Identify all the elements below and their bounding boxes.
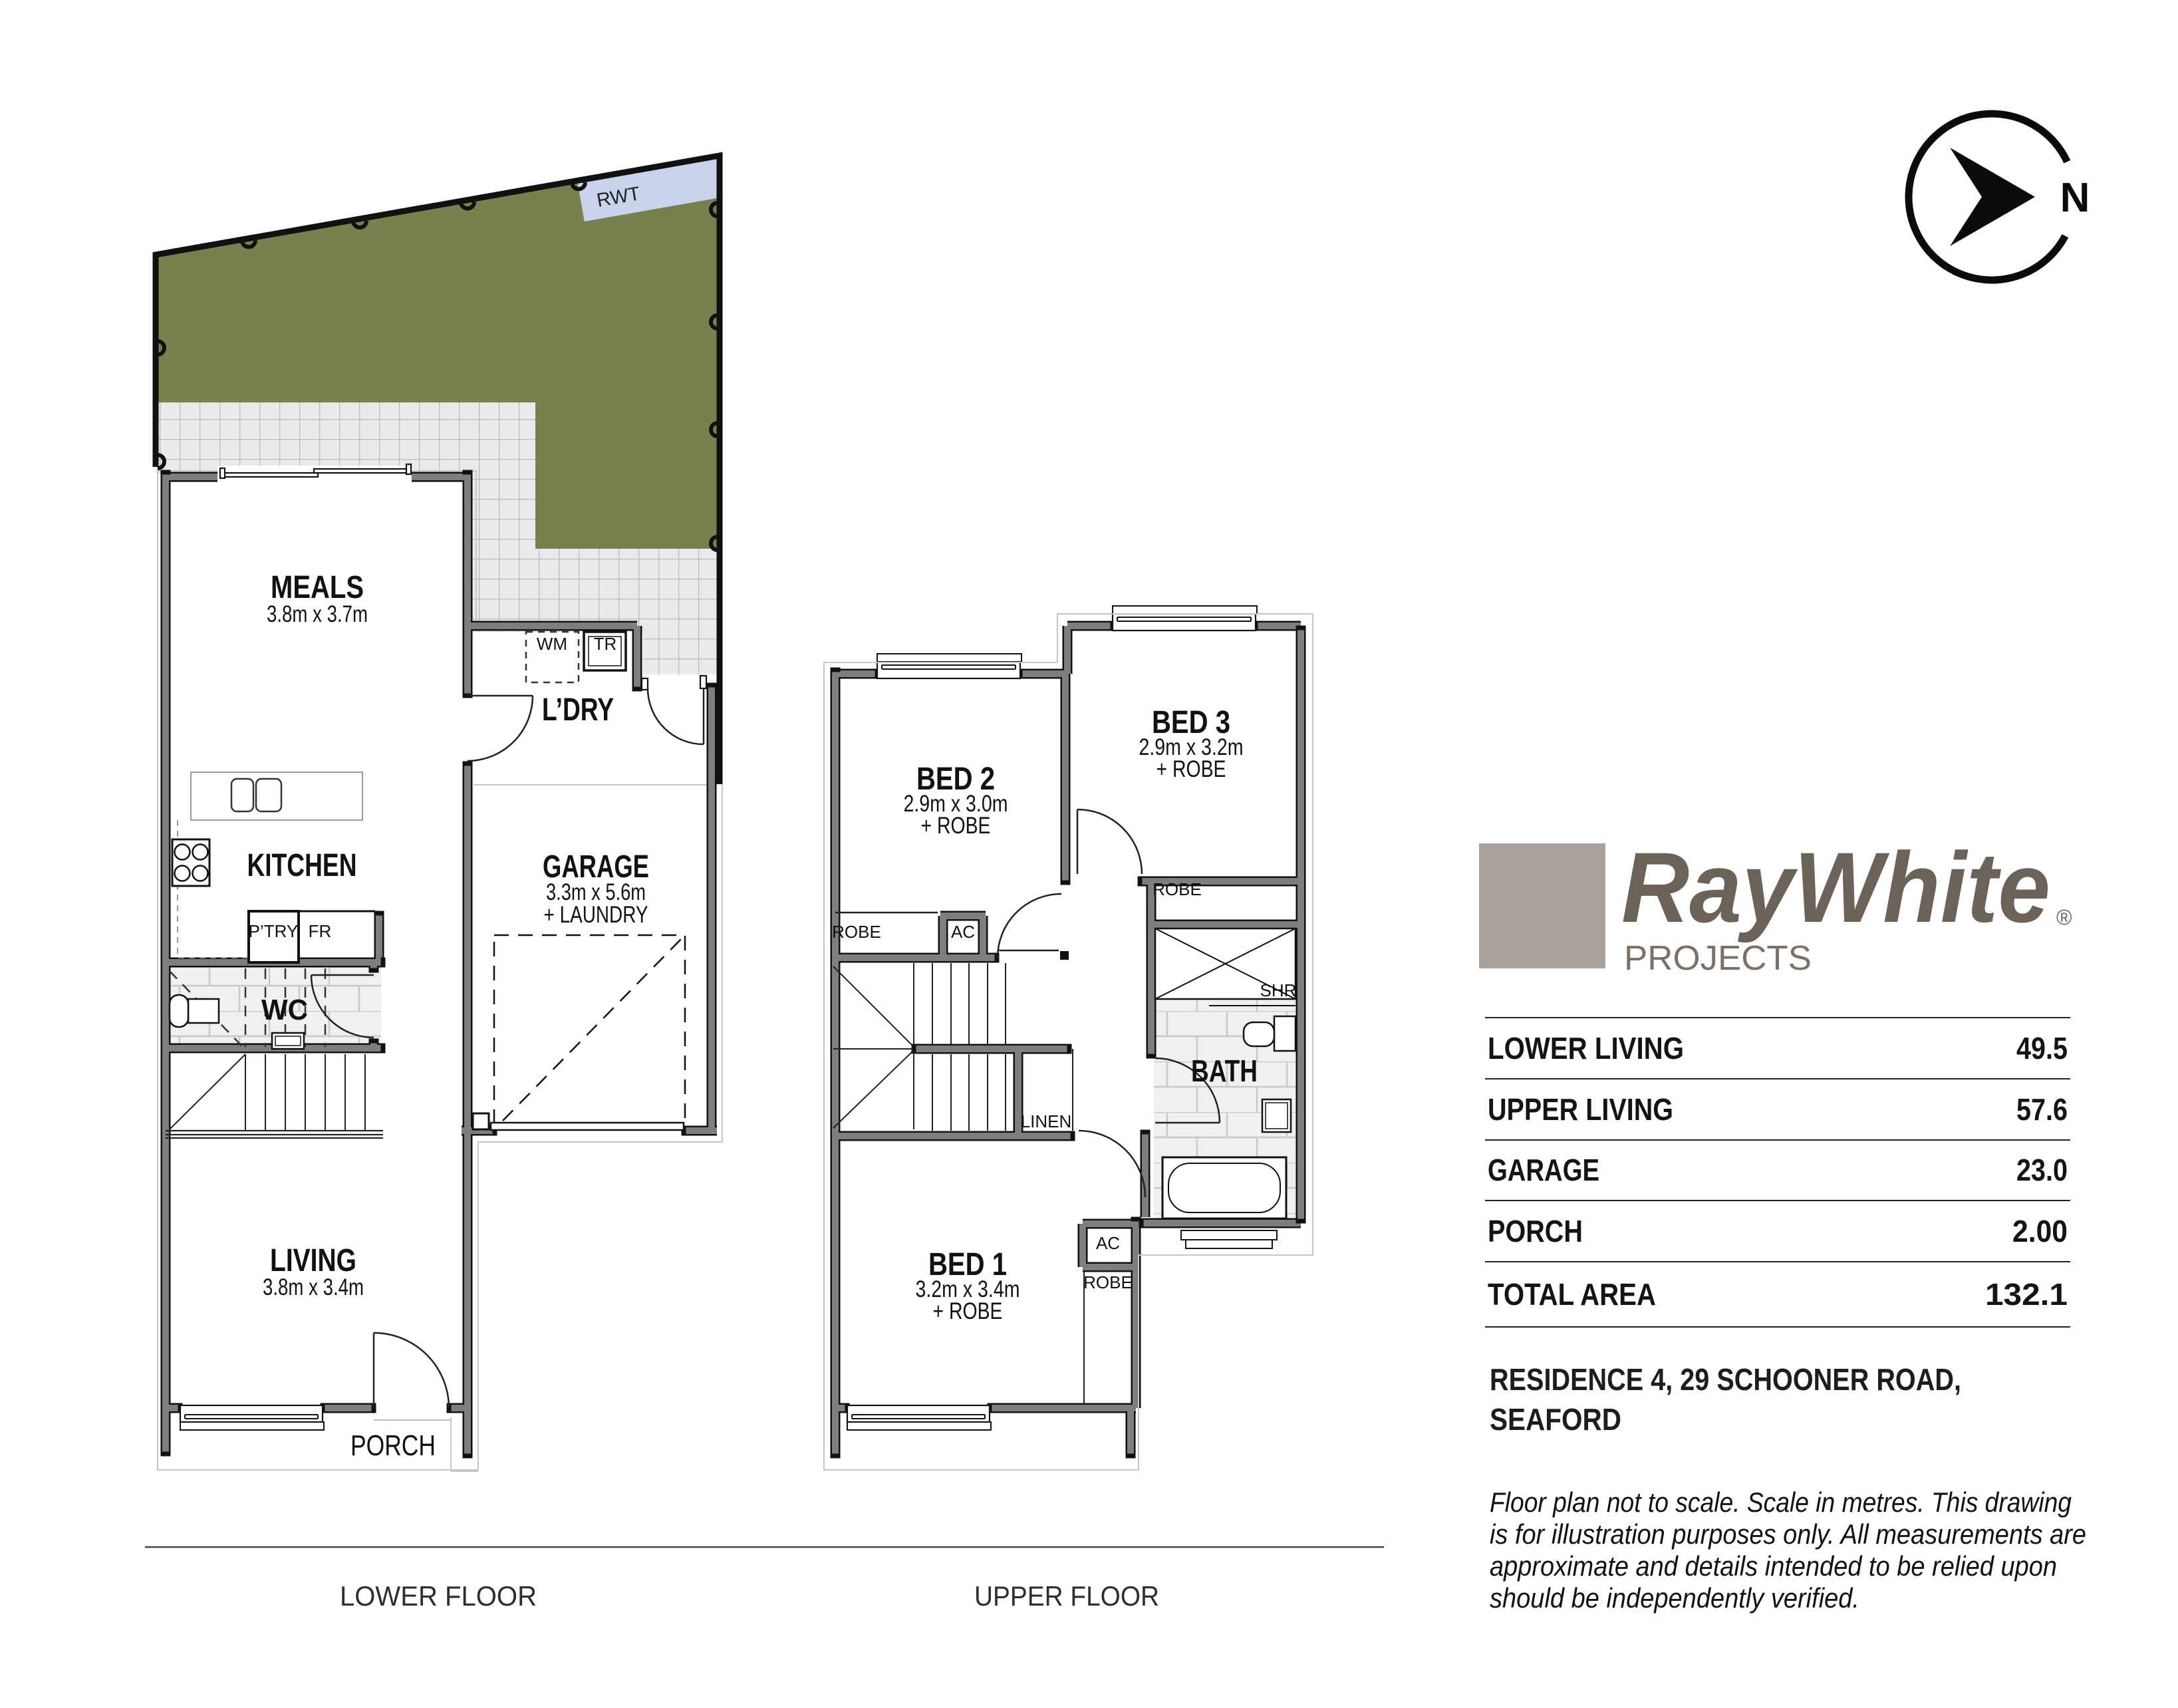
- svg-text:®: ®: [2056, 905, 2072, 929]
- svg-text:Floor plan not to scale. Scale: Floor plan not to scale. Scale in metres…: [1490, 1487, 2072, 1518]
- svg-text:L’DRY: L’DRY: [542, 692, 614, 728]
- svg-text:PORCH: PORCH: [1488, 1214, 1583, 1248]
- svg-text:PORCH: PORCH: [350, 1429, 436, 1462]
- svg-text:ROBE: ROBE: [1153, 879, 1202, 899]
- svg-text:+ LAUNDRY: + LAUNDRY: [544, 902, 648, 928]
- svg-text:+ ROBE: + ROBE: [933, 1298, 1003, 1324]
- svg-text:UPPER FLOOR: UPPER FLOOR: [974, 1580, 1159, 1612]
- svg-text:AC: AC: [951, 922, 975, 942]
- svg-text:3.8m x 3.4m: 3.8m x 3.4m: [263, 1274, 364, 1300]
- svg-text:KITCHEN: KITCHEN: [247, 848, 357, 883]
- svg-text:BATH: BATH: [1191, 1054, 1258, 1088]
- svg-text:P’TRY: P’TRY: [249, 921, 299, 941]
- svg-text:132.1: 132.1: [1985, 1277, 2068, 1312]
- svg-text:LOWER FLOOR: LOWER FLOOR: [340, 1580, 537, 1612]
- svg-text:LINEN: LINEN: [1021, 1111, 1072, 1131]
- svg-text:LIVING: LIVING: [270, 1243, 356, 1278]
- svg-text:WC: WC: [261, 994, 308, 1026]
- svg-text:approximate and details intend: approximate and details intended to be r…: [1490, 1550, 2057, 1582]
- svg-text:57.6: 57.6: [2016, 1092, 2068, 1127]
- svg-text:+ ROBE: + ROBE: [1157, 756, 1226, 782]
- svg-text:MEALS: MEALS: [271, 570, 364, 605]
- svg-text:ROBE: ROBE: [832, 922, 881, 942]
- svg-text:SEAFORD: SEAFORD: [1490, 1402, 1621, 1437]
- svg-text:SHR: SHR: [1260, 980, 1297, 1000]
- svg-text:2.00: 2.00: [2012, 1214, 2068, 1248]
- svg-text:23.0: 23.0: [2016, 1153, 2068, 1187]
- svg-text:is for illustration purposes o: is for illustration purposes only. All m…: [1490, 1518, 2086, 1550]
- svg-text:+ ROBE: + ROBE: [921, 813, 991, 839]
- svg-text:49.5: 49.5: [2016, 1031, 2068, 1066]
- svg-text:TOTAL AREA: TOTAL AREA: [1488, 1277, 1656, 1312]
- svg-text:should be independently verifi: should be independently verified.: [1490, 1582, 1859, 1614]
- svg-text:AC: AC: [1096, 1233, 1120, 1253]
- svg-text:RESIDENCE 4, 29 SCHOONER ROAD,: RESIDENCE 4, 29 SCHOONER ROAD,: [1490, 1362, 1961, 1397]
- svg-text:GARAGE: GARAGE: [1488, 1153, 1599, 1187]
- svg-text:FR: FR: [309, 921, 332, 941]
- svg-text:PROJECTS: PROJECTS: [1624, 939, 1812, 978]
- svg-text:N: N: [2060, 175, 2090, 221]
- svg-text:RayWhite: RayWhite: [1621, 831, 2050, 943]
- svg-text:LOWER LIVING: LOWER LIVING: [1488, 1031, 1684, 1066]
- svg-text:UPPER LIVING: UPPER LIVING: [1488, 1092, 1673, 1127]
- svg-text:3.8m x 3.7m: 3.8m x 3.7m: [267, 601, 368, 627]
- svg-text:ROBE: ROBE: [1083, 1272, 1133, 1292]
- svg-text:WM: WM: [537, 634, 567, 654]
- svg-text:TR: TR: [594, 634, 617, 654]
